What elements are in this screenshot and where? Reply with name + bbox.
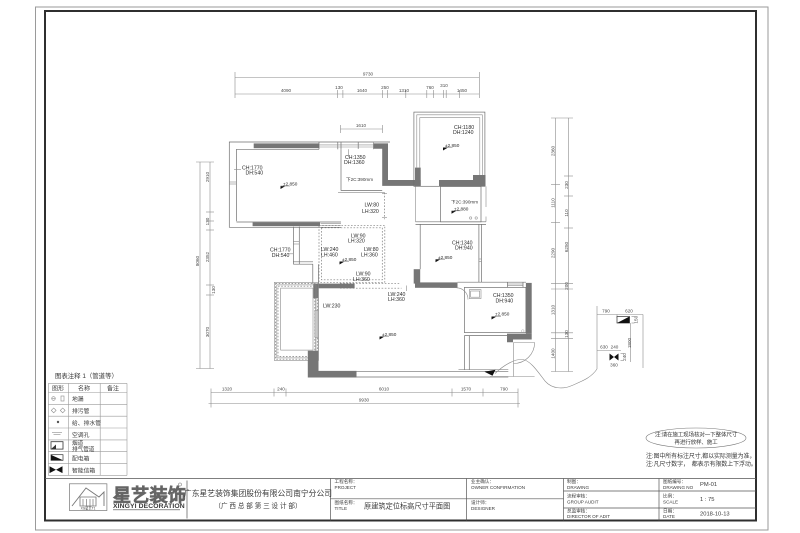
svg-text:LH:320: LH:320 [348, 239, 365, 245]
svg-text:排污管: 排污管 [72, 407, 90, 415]
svg-text:1 : 75: 1 : 75 [700, 497, 715, 503]
svg-text:再进行放样、施工: 再进行放样、施工 [674, 438, 718, 446]
svg-text:LH:360: LH:360 [361, 252, 378, 258]
svg-text:LH:320: LH:320 [362, 209, 379, 215]
svg-text:150: 150 [634, 315, 639, 323]
svg-text:GROUP AUDIT: GROUP AUDIT [567, 500, 599, 505]
svg-text:360: 360 [610, 363, 618, 368]
svg-text:DH:940: DH:940 [496, 298, 514, 304]
svg-text:广东星艺装饰集团股份有限公司南宁分公司: 广东星艺装饰集团股份有限公司南宁分公司 [184, 488, 332, 498]
svg-text:110: 110 [564, 209, 569, 217]
svg-text:注:凡尺寸数字， 都表示有限数上下浮动。: 注:凡尺寸数字， 都表示有限数上下浮动。 [646, 460, 757, 468]
svg-text:流程审核：: 流程审核： [567, 493, 590, 500]
svg-text:2018-10-13: 2018-10-13 [700, 512, 730, 518]
svg-text:图纸名称：: 图纸名称： [335, 499, 358, 506]
svg-text:1110: 1110 [551, 198, 556, 208]
svg-text:LH:460: LH:460 [321, 252, 338, 258]
svg-text:240: 240 [622, 353, 627, 361]
svg-text:2360: 2360 [551, 145, 556, 156]
svg-text:TITLE: TITLE [335, 506, 348, 511]
svg-text:630: 630 [600, 345, 608, 350]
svg-text:DH:940: DH:940 [455, 245, 473, 251]
svg-text:6010: 6010 [379, 387, 390, 392]
svg-text:250: 250 [381, 85, 389, 90]
svg-text:注:图中所有标注尺寸,都以实际测量为准，: 注:图中所有标注尺寸,都以实际测量为准， [646, 452, 755, 460]
svg-text:图表注释 1（管道等）: 图表注释 1（管道等） [55, 371, 118, 380]
svg-text:图形: 图形 [52, 385, 64, 393]
svg-text:2910: 2910 [205, 171, 210, 182]
svg-text:4090: 4090 [281, 88, 292, 93]
svg-text:130: 130 [564, 330, 569, 338]
svg-text:9930: 9930 [359, 398, 370, 403]
svg-text:LW:80: LW:80 [365, 202, 380, 208]
svg-text:DH:540: DH:540 [272, 253, 290, 259]
svg-text:620: 620 [625, 309, 633, 314]
svg-text:DH:540: DH:540 [246, 170, 264, 176]
svg-text:DRAWING: DRAWING [567, 485, 589, 490]
svg-text:PROJECT: PROJECT [335, 485, 357, 490]
svg-text:给、排水管: 给、排水管 [72, 419, 101, 427]
svg-text:200: 200 [564, 282, 569, 290]
svg-text:名称: 名称 [78, 385, 90, 393]
svg-text:1320: 1320 [222, 387, 233, 392]
svg-text:地漏: 地漏 [72, 395, 84, 403]
svg-text:DRAWING NO: DRAWING NO [663, 485, 694, 490]
svg-text:310: 310 [440, 83, 448, 88]
svg-text:240: 240 [277, 387, 285, 392]
svg-text:比例：: 比例： [663, 493, 677, 500]
svg-text:OWNER CONFIRMATION: OWNER CONFIRMATION [471, 485, 525, 490]
svg-text:2352: 2352 [205, 251, 210, 262]
svg-text:SCALE: SCALE [663, 500, 678, 505]
svg-text:230: 230 [564, 181, 569, 189]
svg-text:2290: 2290 [551, 247, 556, 258]
svg-text:业主确认：: 业主确认： [471, 478, 494, 485]
svg-text:DH:1360: DH:1360 [344, 160, 365, 166]
svg-text:1640: 1640 [357, 88, 368, 93]
svg-text:配电箱: 配电箱 [72, 455, 90, 463]
svg-text:3070: 3070 [205, 326, 210, 337]
svg-text:烟道: 烟道 [72, 439, 84, 447]
svg-text:9730: 9730 [363, 72, 374, 77]
svg-text:原建筑定位标高尺寸平面图: 原建筑定位标高尺寸平面图 [364, 502, 450, 511]
svg-text:备注: 备注 [107, 385, 119, 393]
svg-text:DIRECTOR OF ADIT: DIRECTOR OF ADIT [567, 514, 610, 519]
svg-text:130: 130 [211, 286, 216, 294]
svg-text:790: 790 [602, 309, 610, 314]
svg-text:1570: 1570 [461, 387, 472, 392]
svg-text:智能信箱: 智能信箱 [72, 466, 95, 474]
svg-text:1610: 1610 [356, 123, 367, 128]
svg-text:LW:230: LW:230 [323, 304, 341, 310]
svg-text:240: 240 [611, 345, 619, 350]
svg-text:空调孔: 空调孔 [72, 431, 90, 439]
svg-text:LH:360: LH:360 [353, 277, 370, 283]
svg-text:1310: 1310 [399, 88, 410, 93]
svg-text:制图：: 制图： [567, 478, 581, 485]
svg-text:DH:1240: DH:1240 [453, 130, 474, 136]
svg-text:8060: 8060 [195, 255, 200, 266]
svg-text:760: 760 [426, 85, 434, 90]
svg-text:6250: 6250 [564, 241, 569, 252]
svg-text:DATE: DATE [663, 514, 675, 519]
svg-text:1450: 1450 [457, 88, 468, 93]
svg-text:DESIGNER: DESIGNER [471, 506, 496, 511]
svg-text:XG星艺T1: XG星艺T1 [81, 506, 96, 511]
svg-text:（广 西 总 部 第 三 设 计 部）: （广 西 总 部 第 三 设 计 部） [214, 501, 301, 510]
svg-text:工程名称：: 工程名称： [335, 478, 358, 485]
svg-text:130: 130 [335, 85, 343, 90]
svg-text:XINGYI DECORATION: XINGYI DECORATION [113, 503, 185, 510]
svg-text:排气管道: 排气管道 [72, 445, 95, 453]
svg-text:1400: 1400 [551, 348, 556, 359]
svg-text:1800: 1800 [627, 337, 632, 348]
svg-text:PM-01: PM-01 [700, 482, 717, 488]
svg-text:LH:360: LH:360 [388, 297, 405, 303]
svg-text:130: 130 [205, 217, 210, 225]
svg-text:790: 790 [500, 387, 508, 392]
svg-text:注:请在施工现场核对一下整体尺寸: 注:请在施工现场核对一下整体尺寸 [655, 431, 738, 439]
svg-text:±2.850: ±2.850 [495, 312, 510, 317]
svg-text:1310: 1310 [551, 304, 556, 315]
svg-text:设计师：: 设计师： [471, 499, 489, 506]
svg-text:图纸编号：: 图纸编号： [663, 478, 686, 485]
